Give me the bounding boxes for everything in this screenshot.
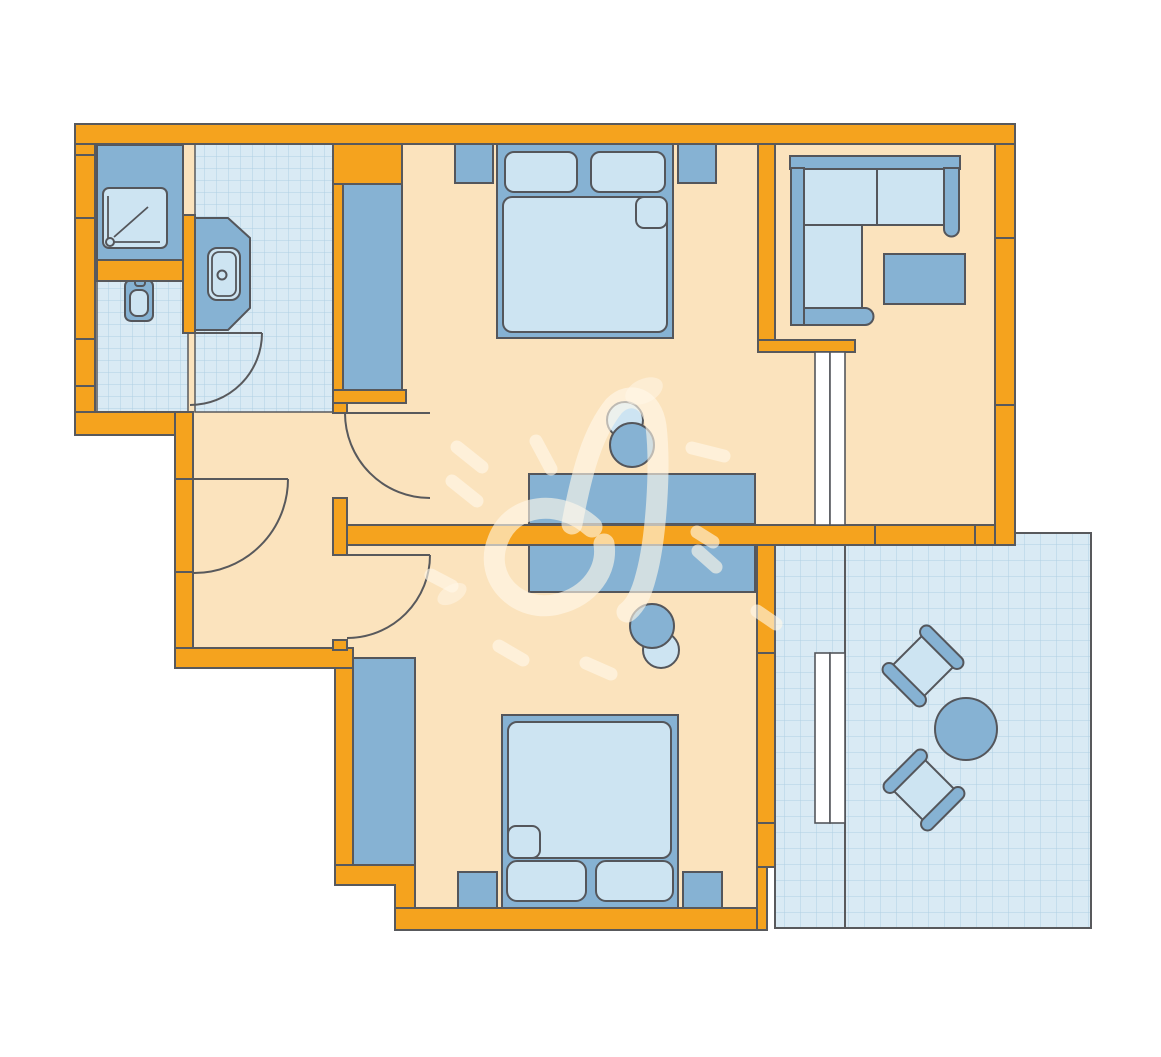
terrace xyxy=(775,533,1091,928)
wall-top xyxy=(75,124,1015,144)
wall-right xyxy=(995,144,1015,545)
pillow xyxy=(591,152,665,192)
shower-drain xyxy=(106,238,114,246)
sofa-cushion xyxy=(804,169,877,225)
toilet xyxy=(125,279,153,321)
washbasin-vanity xyxy=(195,218,250,330)
double-bed xyxy=(497,144,673,338)
wall-bedroom2-east-lower xyxy=(757,867,767,930)
shower xyxy=(97,145,183,260)
wardrobe xyxy=(343,184,402,390)
wall-bedroom2-east xyxy=(757,525,775,867)
nightstand-right xyxy=(683,872,722,908)
wall-hall-east-stub xyxy=(333,498,347,555)
wall-bath-bedroom-chunk xyxy=(333,144,402,184)
wall-bedroom2-west-step xyxy=(335,865,415,908)
pillow xyxy=(507,861,586,901)
wardrobe xyxy=(353,658,415,865)
wall-hall-bottom xyxy=(175,648,353,668)
faucet xyxy=(218,271,227,280)
nightstand-right xyxy=(678,144,716,183)
wall-hall-east-stub-lower xyxy=(333,640,347,650)
terrace-table xyxy=(935,698,997,760)
wall-bedroom2-west xyxy=(335,668,353,885)
coffee-table xyxy=(884,254,965,304)
wall-bedroom2-bottom xyxy=(395,908,767,930)
double-bed xyxy=(502,715,678,908)
toilet-bowl xyxy=(130,290,148,316)
floor-plan-svg xyxy=(0,0,1161,1057)
wall-bath-bedroom xyxy=(333,184,343,390)
nightstand-left xyxy=(455,144,493,183)
sofa-back xyxy=(790,156,960,169)
sofa-cushion xyxy=(804,225,862,308)
wall-hall-west xyxy=(175,412,193,668)
blanket-fold xyxy=(508,826,540,858)
floor-plan xyxy=(0,0,1161,1057)
sofa-cushion xyxy=(877,169,944,225)
wall-middle-horizontal xyxy=(347,525,1015,545)
wall-living-stub xyxy=(758,340,855,352)
wall-shower-divider xyxy=(97,260,183,281)
sliding-door-living xyxy=(815,352,845,525)
pillow xyxy=(596,861,673,901)
blanket-fold xyxy=(636,197,667,228)
wall-bathroom-divider xyxy=(183,215,195,333)
wall-left xyxy=(75,144,95,435)
wall-wardrobe-niche-bottom xyxy=(333,390,406,403)
pillow xyxy=(505,152,577,192)
wall-bath-bedroom-lower xyxy=(333,403,347,413)
sofa-arm-bottom xyxy=(804,308,874,325)
sliding-door-terrace xyxy=(815,653,845,823)
nightstand-left xyxy=(458,872,497,908)
sofa-arm-right xyxy=(944,168,959,237)
sofa-arm-left xyxy=(791,168,804,325)
wall-living-west xyxy=(758,144,775,340)
